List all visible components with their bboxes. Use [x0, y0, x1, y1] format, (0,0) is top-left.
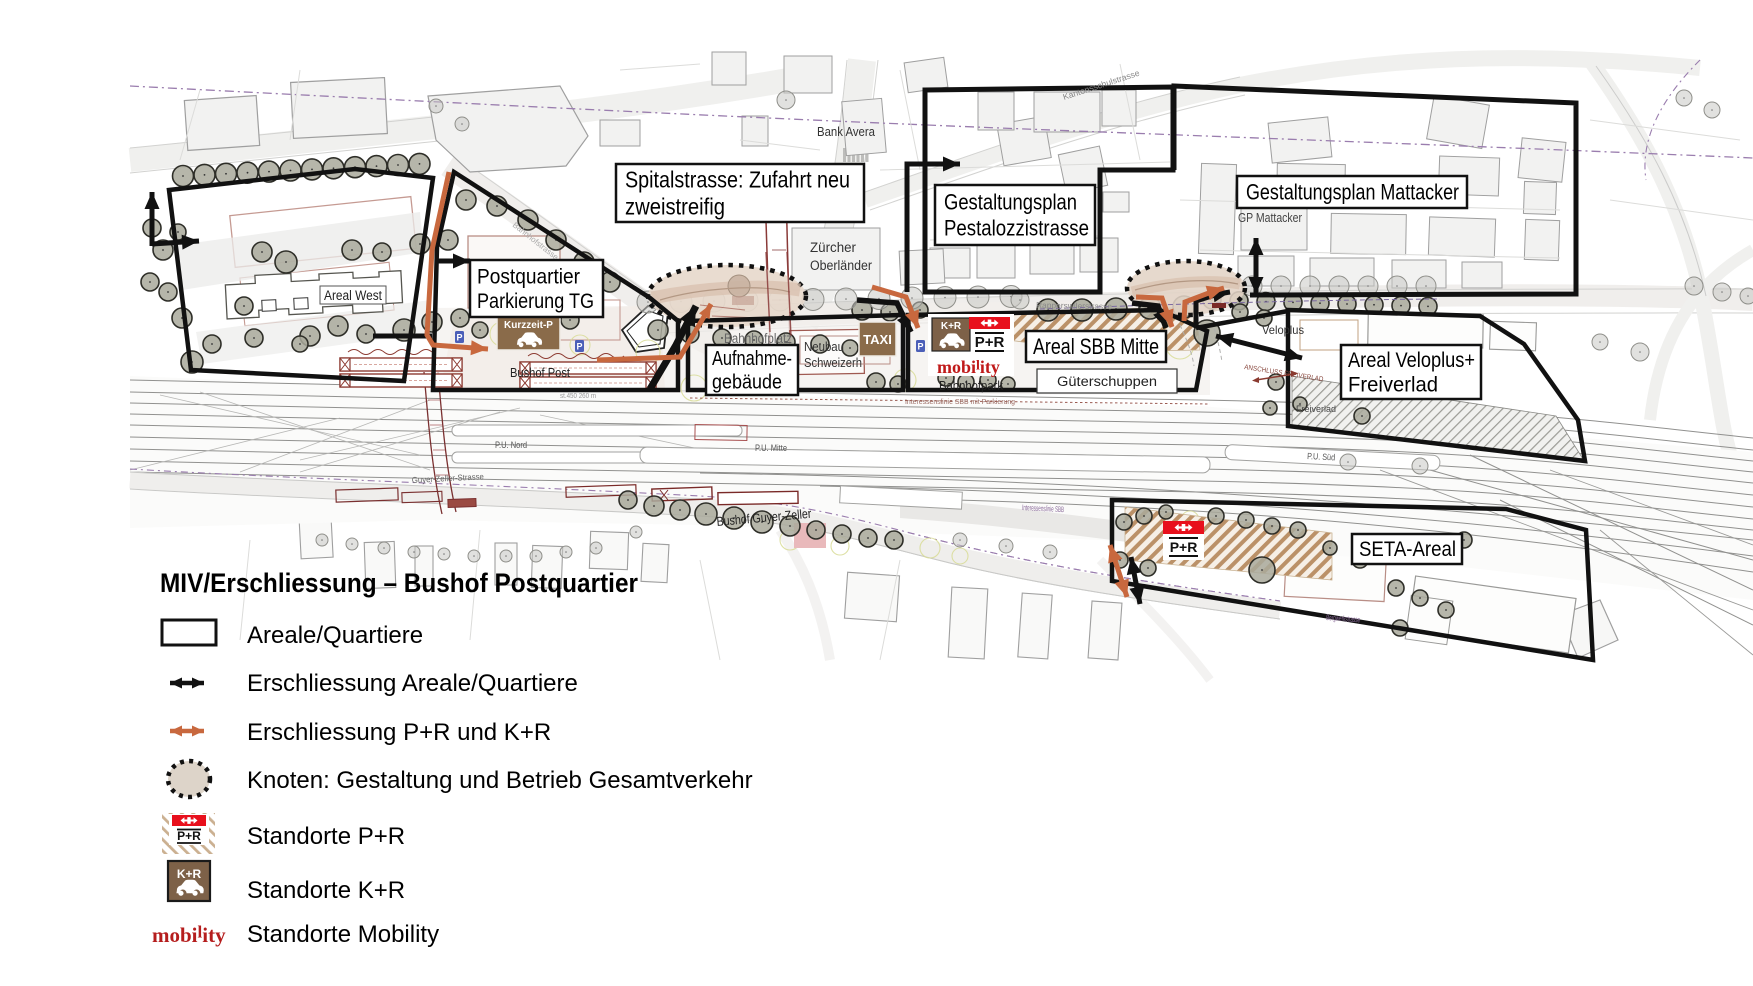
svg-text:Areal West: Areal West [324, 288, 382, 303]
svg-text:st.450 260 m: st.450 260 m [560, 393, 596, 400]
svg-text:Oberländer: Oberländer [810, 258, 872, 273]
svg-text:Aufnahme-: Aufnahme- [712, 348, 792, 370]
svg-text:Standorte K+R: Standorte K+R [247, 877, 405, 904]
svg-text:gebäude: gebäude [712, 372, 782, 394]
svg-text:Standorte P+R: Standorte P+R [247, 823, 405, 850]
svg-text:Schweizerh: Schweizerh [804, 355, 862, 370]
svg-text:K+R: K+R [941, 321, 962, 332]
svg-text:zweistreifig: zweistreifig [625, 193, 725, 219]
svg-text:P.U. Nord: P.U. Nord [495, 440, 527, 450]
svg-text:Güterschuppen: Güterschuppen [1057, 374, 1157, 389]
svg-text:Spitalstrasse: Zufahrt neu: Spitalstrasse: Zufahrt neu [625, 166, 850, 192]
svg-text:Areal SBB Mitte: Areal SBB Mitte [1033, 334, 1159, 359]
svg-text:Pestalozzistrasse: Pestalozzistrasse [944, 215, 1089, 240]
svg-text:Bank Avera: Bank Avera [817, 124, 876, 139]
svg-text:P+R: P+R [975, 334, 1005, 351]
svg-text:mobility: mobility [152, 923, 226, 948]
svg-text:P.U. Mitte: P.U. Mitte [755, 443, 787, 453]
svg-text:Gestaltungsplan Mattacker: Gestaltungsplan Mattacker [1246, 179, 1459, 204]
svg-text:Knoten: Gestaltung und Betrieb: Knoten: Gestaltung und Betrieb Gesamtver… [247, 767, 753, 794]
svg-text:Parkierung TG: Parkierung TG [477, 290, 594, 313]
svg-text:GP Mattacker: GP Mattacker [1238, 210, 1303, 225]
svg-text:Postquartier: Postquartier [477, 265, 580, 288]
svg-text:Zürcher: Zürcher [810, 240, 856, 255]
svg-text:Freiverlad: Freiverlad [1296, 404, 1336, 414]
svg-text:P.U. Süd: P.U. Süd [1307, 451, 1335, 462]
svg-text:Areale/Quartiere: Areale/Quartiere [247, 622, 423, 649]
svg-text:P: P [456, 333, 462, 343]
svg-text:P: P [576, 342, 582, 352]
svg-text:MIV/Erschliessung – Bushof Pos: MIV/Erschliessung – Bushof Postquartier [160, 568, 638, 598]
svg-text:TAXI: TAXI [863, 332, 892, 347]
svg-text:Erschliessung Areale/Quartiere: Erschliessung Areale/Quartiere [247, 670, 578, 697]
svg-text:Bahnhofpark: Bahnhofpark [939, 378, 1003, 393]
svg-text:mobility: mobility [937, 357, 1000, 377]
svg-text:Freiverlad: Freiverlad [1348, 374, 1438, 397]
svg-text:Veloplus: Veloplus [1262, 323, 1304, 337]
svg-text:Erschliessung P+R und K+R: Erschliessung P+R und K+R [247, 719, 551, 746]
svg-text:P+R: P+R [1170, 539, 1198, 555]
svg-text:Rapperswilerstrasse: Rapperswilerstrasse [1036, 300, 1112, 311]
svg-text:Standorte Mobility: Standorte Mobility [247, 921, 439, 948]
svg-text:Gestaltungsplan: Gestaltungsplan [944, 190, 1077, 215]
svg-text:K+R: K+R [177, 867, 202, 881]
svg-text:P+R: P+R [177, 829, 201, 843]
svg-text:Areal Veloplus+: Areal Veloplus+ [1348, 349, 1475, 372]
svg-text:Bushof Post: Bushof Post [510, 365, 570, 380]
svg-text:Neubau: Neubau [804, 339, 844, 354]
svg-text:Interessenslinie SBB mit Parki: Interessenslinie SBB mit Parkierung [905, 399, 1015, 406]
svg-text:P: P [917, 342, 923, 352]
svg-text:Kurzzeit-P: Kurzzeit-P [504, 320, 553, 331]
svg-text:SETA-Areal: SETA-Areal [1359, 538, 1456, 561]
